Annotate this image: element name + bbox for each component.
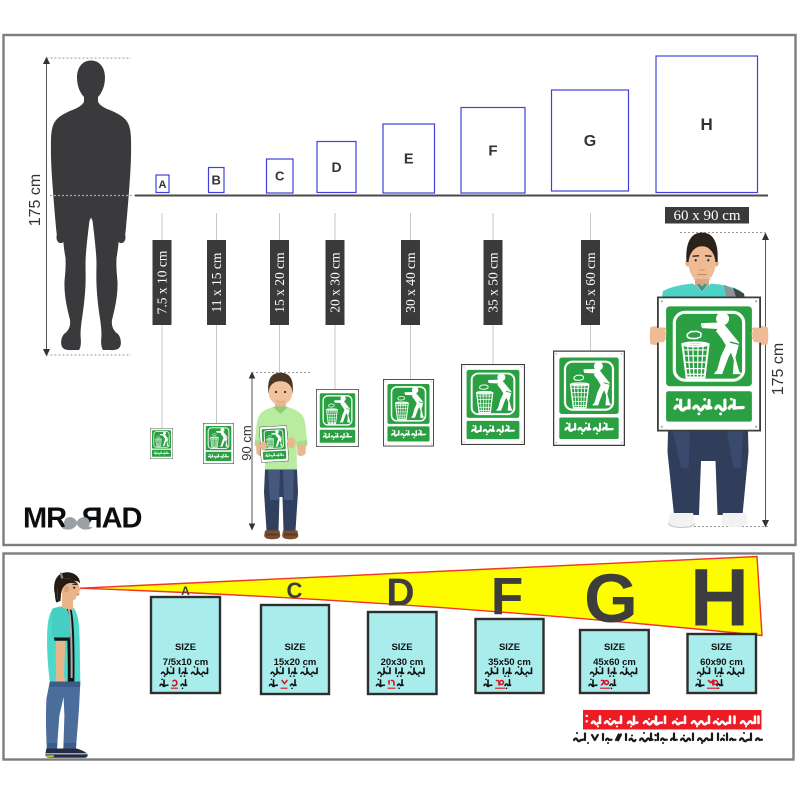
svg-text:90 cm: 90 cm xyxy=(239,425,254,460)
svg-text:45 x 60 cm: 45 x 60 cm xyxy=(583,252,598,313)
svg-text:H: H xyxy=(690,553,749,644)
svg-text:H: H xyxy=(701,115,713,134)
svg-text:SIZE: SIZE xyxy=(175,642,196,653)
svg-text:15 x 20 cm: 15 x 20 cm xyxy=(272,252,287,313)
svg-text:A: A xyxy=(159,179,167,191)
svg-text:C: C xyxy=(275,169,285,184)
svg-text:SIZE: SIZE xyxy=(499,642,520,653)
svg-text:7/5x10 cm: 7/5x10 cm xyxy=(163,657,208,668)
svg-text:G: G xyxy=(584,133,596,150)
svg-text:C: C xyxy=(287,578,303,603)
svg-text:B: B xyxy=(212,173,221,188)
svg-text:G: G xyxy=(584,560,638,637)
svg-text:D: D xyxy=(331,159,341,175)
svg-text:7.5 x 10 cm: 7.5 x 10 cm xyxy=(155,250,170,314)
svg-text:SIZE: SIZE xyxy=(284,642,305,653)
svg-text:A: A xyxy=(181,584,190,598)
svg-text:MR: MR xyxy=(23,503,67,535)
svg-text:175 cm: 175 cm xyxy=(27,174,44,226)
svg-text:60 x 90 cm: 60 x 90 cm xyxy=(673,208,740,224)
svg-text:SIZE: SIZE xyxy=(604,642,625,653)
svg-text:SIZE: SIZE xyxy=(391,642,412,653)
svg-text:D: D xyxy=(386,572,414,615)
svg-text:11 x 15 cm: 11 x 15 cm xyxy=(209,252,224,312)
svg-text:175 cm: 175 cm xyxy=(770,343,787,395)
svg-text:F: F xyxy=(491,568,523,627)
svg-text:F: F xyxy=(488,143,497,160)
svg-text:E: E xyxy=(404,152,414,168)
svg-text:20 x 30 cm: 20 x 30 cm xyxy=(328,252,343,313)
svg-text:30 x 40 cm: 30 x 40 cm xyxy=(403,252,418,313)
svg-text:SIZE: SIZE xyxy=(711,642,732,653)
svg-text:35 x 50 cm: 35 x 50 cm xyxy=(486,252,501,313)
svg-text:ЯAD: ЯAD xyxy=(82,503,142,535)
